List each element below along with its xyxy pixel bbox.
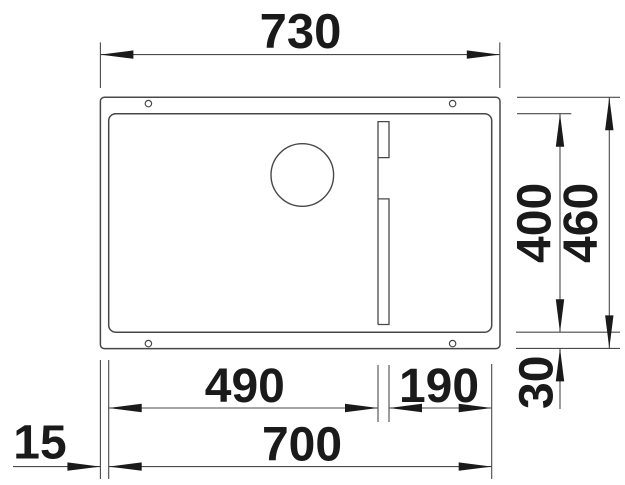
svg-text:15: 15 xyxy=(13,417,66,470)
svg-text:730: 730 xyxy=(260,5,342,59)
svg-text:190: 190 xyxy=(399,360,479,413)
svg-text:30: 30 xyxy=(510,356,563,409)
svg-text:400: 400 xyxy=(509,183,562,263)
svg-text:460: 460 xyxy=(555,183,608,263)
svg-text:490: 490 xyxy=(205,360,285,413)
svg-text:700: 700 xyxy=(262,419,342,472)
